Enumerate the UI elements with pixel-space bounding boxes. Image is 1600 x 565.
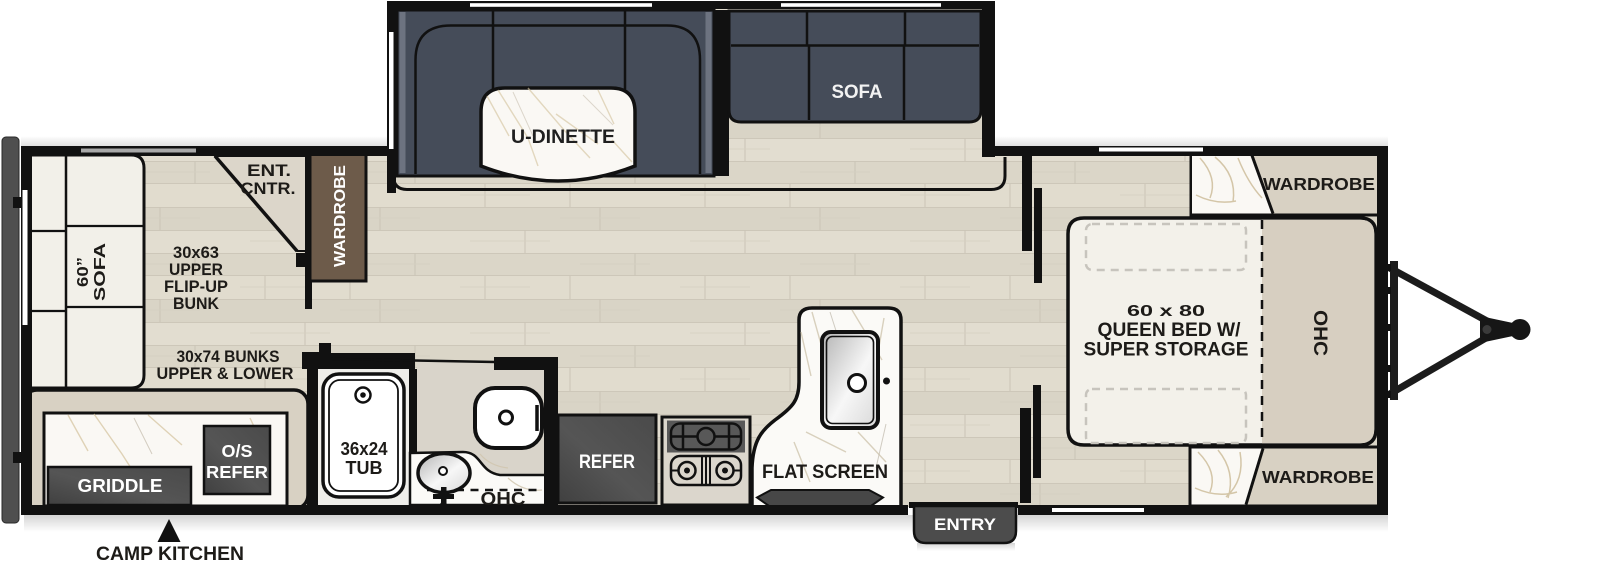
svg-text:FLAT SCREEN: FLAT SCREEN bbox=[762, 462, 888, 483]
svg-text:U-DINETTE: U-DINETTE bbox=[511, 126, 615, 148]
svg-text:WARDROBE: WARDROBE bbox=[1262, 467, 1374, 487]
svg-text:FLIP-UP: FLIP-UP bbox=[164, 278, 228, 296]
svg-text:SUPER STORAGE: SUPER STORAGE bbox=[1084, 339, 1249, 361]
svg-text:REFER: REFER bbox=[206, 462, 268, 482]
svg-text:WARDROBE: WARDROBE bbox=[1263, 174, 1375, 194]
svg-text:CNTR.: CNTR. bbox=[241, 179, 296, 198]
svg-text:CAMP KITCHEN: CAMP KITCHEN bbox=[96, 543, 244, 565]
svg-text:GRIDDLE: GRIDDLE bbox=[78, 475, 163, 496]
svg-text:UPPER: UPPER bbox=[169, 261, 223, 279]
svg-text:TUB: TUB bbox=[346, 458, 383, 478]
svg-text:SOFA: SOFA bbox=[92, 242, 109, 301]
svg-text:O/S: O/S bbox=[222, 441, 253, 461]
svg-text:WARDROBE: WARDROBE bbox=[332, 165, 349, 267]
svg-text:REFER: REFER bbox=[579, 452, 635, 473]
svg-text:BUNK: BUNK bbox=[173, 295, 219, 313]
svg-text:36x24: 36x24 bbox=[341, 439, 388, 459]
svg-text:SOFA: SOFA bbox=[832, 82, 883, 103]
svg-text:UPPER & LOWER: UPPER & LOWER bbox=[157, 364, 294, 383]
svg-text:OHC: OHC bbox=[481, 489, 526, 509]
svg-text:30x63: 30x63 bbox=[173, 244, 219, 262]
svg-text:OHC: OHC bbox=[1309, 310, 1330, 356]
svg-text:ENTRY: ENTRY bbox=[934, 515, 997, 534]
svg-text:ENT.: ENT. bbox=[247, 161, 291, 180]
svg-text:60”: 60” bbox=[75, 257, 92, 287]
svg-text:60 x 80: 60 x 80 bbox=[1127, 303, 1205, 320]
